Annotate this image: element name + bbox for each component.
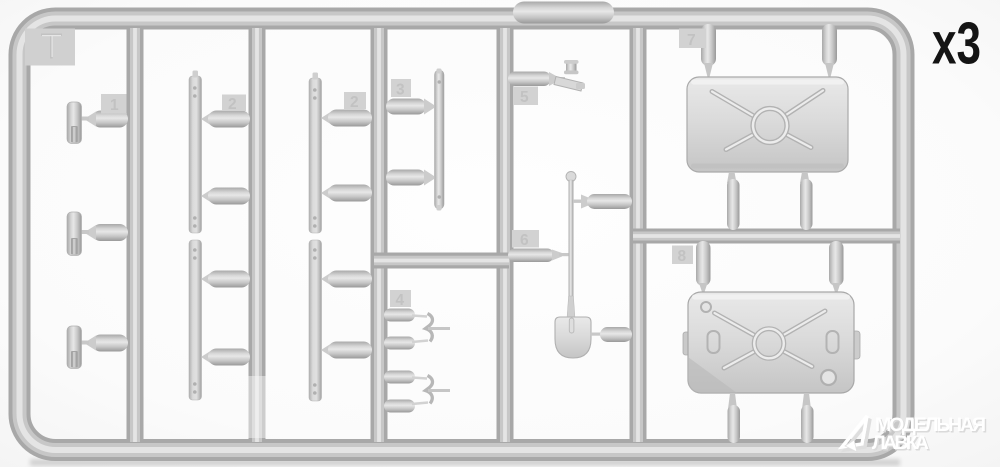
- svg-text:5: 5: [520, 89, 529, 106]
- svg-text:x3: x3: [932, 11, 981, 77]
- svg-text:8: 8: [678, 248, 687, 265]
- svg-text:2: 2: [350, 94, 359, 111]
- svg-text:7: 7: [687, 32, 696, 49]
- svg-text:6: 6: [520, 232, 529, 249]
- svg-text:1: 1: [110, 97, 119, 114]
- svg-text:3: 3: [396, 82, 405, 99]
- svg-text:2: 2: [228, 96, 237, 113]
- svg-text:4: 4: [396, 292, 405, 309]
- svg-text:ЛАВКА: ЛАВКА: [872, 432, 929, 454]
